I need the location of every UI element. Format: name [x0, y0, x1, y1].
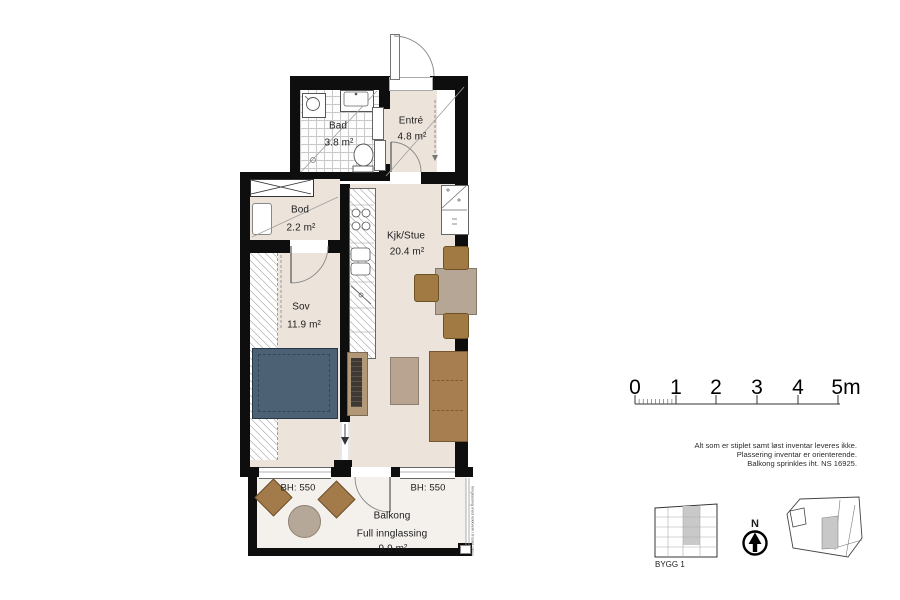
room-area-entre: 4.8 m²: [398, 132, 427, 143]
sofa-cushion-line-1: [432, 380, 463, 381]
bed-duvet-line: [258, 354, 330, 412]
window-living-right: [400, 467, 455, 479]
floor-plan-canvas: Bad 3.8 m² Entré 4.8 m² Bod 2.2 m² Kjk/S…: [0, 0, 900, 600]
wall-outer-left: [240, 172, 250, 477]
room-label-sov: Sov: [292, 302, 310, 313]
opening-arrowhead: [341, 437, 349, 445]
site-plan-diagram: [785, 496, 865, 562]
wall-mid-horizontal-right: [421, 172, 455, 184]
room-area-kjk-stue: 20.4 m²: [390, 247, 425, 258]
dining-chair-left: [414, 274, 439, 302]
scale-label-1: 1: [670, 376, 682, 400]
balcony-round-table: [288, 505, 321, 538]
room-label-bod: Bod: [291, 205, 309, 216]
entrance-door-arc: [394, 36, 434, 76]
room-label-kjk-stue: Kjk/Stue: [387, 231, 425, 242]
room-label-bad: Bad: [329, 121, 347, 132]
sofa: [429, 351, 468, 442]
wall-bottom-3: [391, 467, 400, 477]
balcony-subtitle: Full innglassing: [357, 529, 428, 540]
wall-bottom-4: [455, 467, 473, 477]
wall-storage-bedroom-right: [328, 240, 350, 253]
window-living-left: [259, 467, 331, 479]
disclaimer-notes: Alt som er stiplet samt løst inventar le…: [695, 441, 857, 468]
scale-label-3: 3: [751, 376, 763, 400]
balcony-label: Balkong: [374, 511, 411, 522]
scale-bar-ticks: [630, 394, 862, 408]
north-arrow-icon: [741, 529, 769, 557]
wall-bath-entry-top: [379, 88, 390, 109]
disclaimer-line-1: Alt som er stiplet samt løst inventar le…: [695, 441, 857, 450]
balcony-glass-note: innglassing med rekkverk i frostet glass: [470, 486, 475, 556]
bathroom-sliding-door-panel-2: [374, 140, 386, 171]
balcony-door-threshold: [351, 467, 391, 477]
highlighted-unit-column: [683, 506, 700, 545]
closet-strip: [250, 179, 314, 197]
building-elevation-diagram: [653, 503, 719, 559]
bathroom-sink: [340, 90, 374, 112]
room-area-bod: 2.2 m²: [287, 223, 316, 234]
bathroom-sliding-door-panel-1: [372, 107, 384, 140]
entrance-door-leaf: [390, 34, 400, 80]
fridge-cabinet: [441, 185, 469, 235]
room-area-sov: 11.9 m²: [287, 320, 321, 331]
scale-label-2: 2: [710, 376, 722, 400]
wall-bottom-1: [240, 467, 259, 477]
washing-machine: [302, 93, 326, 118]
balcony-area: 9.9 m²: [379, 544, 408, 555]
wall-bottom-2: [331, 467, 351, 477]
balcony-glass-note-line1: innglassing med rekkverk i: [471, 486, 476, 533]
balcony-wall-bottom: [248, 548, 470, 556]
wall-storage-bedroom-left: [245, 240, 290, 253]
kitchen-counter: [349, 188, 376, 359]
balcony-glass-note-line2: frostet glass: [471, 534, 476, 556]
sill-height-left: BH: 550: [280, 483, 315, 494]
balcony-wall-left: [248, 477, 257, 556]
disclaimer-line-2: Plassering inventar er orienterende.: [695, 450, 857, 459]
scale-label-5m: 5m: [831, 376, 860, 400]
wall-bath-left: [290, 76, 300, 178]
building-label: BYGG 1: [655, 560, 685, 569]
coffee-table: [390, 357, 419, 405]
disclaimer-line-3: Balkong sprinkles iht. NS 16925.: [695, 459, 857, 468]
dining-table: [435, 268, 477, 315]
room-label-entre: Entré: [399, 116, 423, 127]
wall-top-left: [290, 76, 390, 90]
storage-water-heater: [252, 203, 272, 235]
entry-wardrobe-zone: [437, 84, 455, 172]
room-area-bad: 3.8 m²: [325, 138, 354, 149]
dining-chair-top: [443, 246, 469, 270]
scale-label-0: 0: [629, 376, 641, 400]
sofa-cushion-line-2: [432, 410, 463, 411]
highlighted-unit-footprint: [822, 516, 838, 549]
sill-height-right: BH: 550: [410, 483, 445, 494]
dining-chair-bottom: [443, 313, 469, 339]
scale-label-4: 4: [792, 376, 804, 400]
tv-screen: [351, 358, 362, 407]
